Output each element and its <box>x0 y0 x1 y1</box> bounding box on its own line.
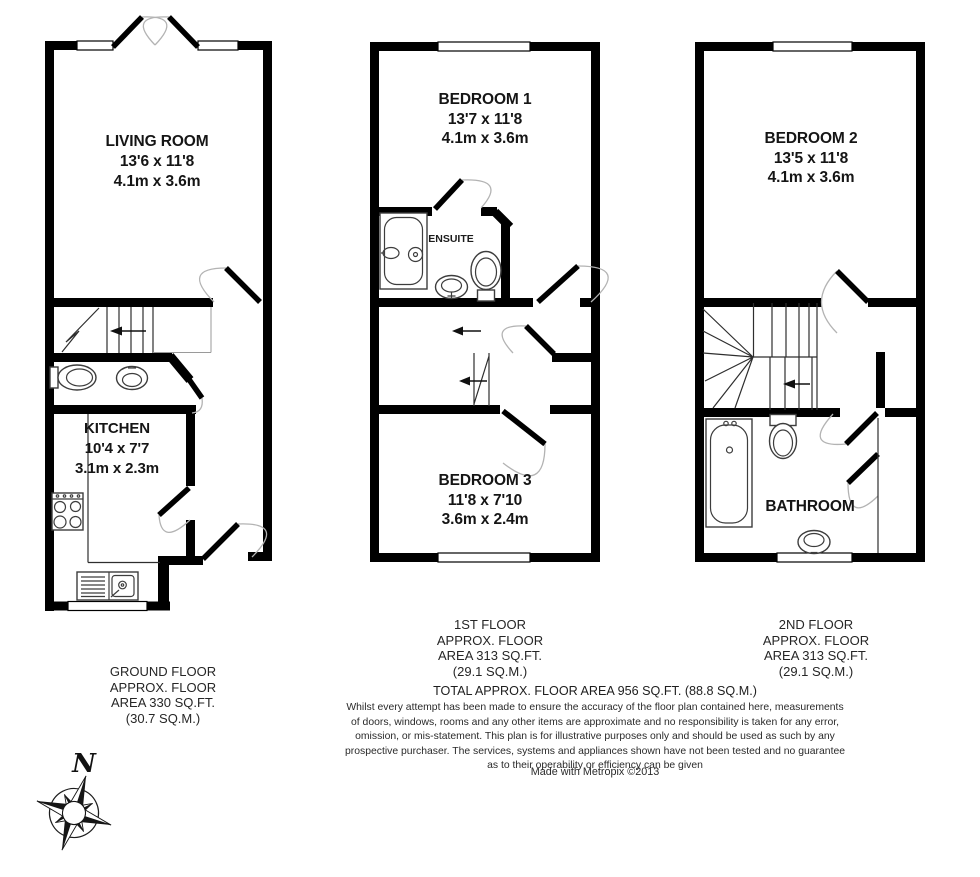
room-dims-imperial: 13'7 x 11'8 <box>385 110 585 130</box>
room-name: ENSUITE <box>423 233 479 245</box>
caption-line: (29.1 SQ.M.) <box>390 664 590 680</box>
caption-line: APPROX. FLOOR <box>716 633 916 649</box>
window <box>68 602 147 611</box>
room-name: BEDROOM 3 <box>385 471 585 491</box>
room-dims-imperial: 10'4 x 7'7 <box>32 439 202 459</box>
ground-floor-plan <box>45 17 272 611</box>
toilet-fixture <box>471 252 501 302</box>
window <box>198 41 238 50</box>
window <box>438 42 530 51</box>
room-name: LIVING ROOM <box>57 132 257 152</box>
caption-line: GROUND FLOOR <box>63 664 263 680</box>
basin-fixture <box>436 276 468 299</box>
disclaimer-line: of doors, windows, rooms and any other i… <box>195 716 980 731</box>
disclaimer-line: Whilst every attempt has been made to en… <box>195 701 980 716</box>
toilet-fixture <box>770 415 797 459</box>
french-doors <box>113 17 198 47</box>
compass-rose-icon: N <box>25 749 123 862</box>
living-room-label: LIVING ROOM 13'6 x 11'8 4.1m x 3.6m <box>57 132 257 192</box>
caption-line: 1ST FLOOR <box>390 617 590 633</box>
bathroom-label: BATHROOM <box>750 497 870 517</box>
bedroom3-label: BEDROOM 3 11'8 x 7'10 3.6m x 2.4m <box>385 471 585 530</box>
room-dims-metric: 3.6m x 2.4m <box>385 510 585 530</box>
bedroom1-label: BEDROOM 1 13'7 x 11'8 4.1m x 3.6m <box>385 90 585 149</box>
stairs-icon <box>703 303 817 410</box>
stairs-icon <box>452 327 489 407</box>
caption-line: 2ND FLOOR <box>716 617 916 633</box>
door <box>159 488 190 532</box>
credit-line: Made with Metropix ©2013 <box>195 766 980 778</box>
stairs-icon <box>62 307 211 353</box>
basin-fixture <box>798 531 830 554</box>
basin-fixture <box>117 367 148 390</box>
caption-line: APPROX. FLOOR <box>390 633 590 649</box>
compass-north-label: N <box>71 749 97 779</box>
door <box>503 411 545 476</box>
sink-fixture <box>77 572 138 600</box>
door <box>822 271 869 333</box>
room-dims-metric: 4.1m x 3.6m <box>385 129 585 149</box>
caption-line: (29.1 SQ.M.) <box>716 664 916 680</box>
room-name: BEDROOM 2 <box>711 129 911 149</box>
bath-fixture <box>706 419 752 527</box>
room-name: BEDROOM 1 <box>385 90 585 110</box>
disclaimer-line: prospective purchaser. The services, sys… <box>195 745 980 760</box>
disclaimer-line: omission, or mis-statement. This plan is… <box>195 730 980 745</box>
wall <box>170 356 190 380</box>
window <box>773 42 852 51</box>
door <box>502 326 554 354</box>
room-name: KITCHEN <box>32 419 202 439</box>
bedroom2-label: BEDROOM 2 13'5 x 11'8 4.1m x 3.6m <box>711 129 911 188</box>
window <box>77 41 113 50</box>
room-dims-metric: 4.1m x 3.6m <box>711 168 911 188</box>
room-name: BATHROOM <box>750 497 870 517</box>
window <box>438 553 530 562</box>
room-dims-imperial: 13'6 x 11'8 <box>57 152 257 172</box>
ensuite-label: ENSUITE <box>423 233 479 245</box>
room-dims-imperial: 13'5 x 11'8 <box>711 149 911 169</box>
second-floor-plan <box>695 42 925 562</box>
second-floor-caption: 2ND FLOOR APPROX. FLOOR AREA 313 SQ.FT. … <box>716 617 916 679</box>
shower-fixture <box>380 213 427 289</box>
room-dims-metric: 4.1m x 3.6m <box>57 172 257 192</box>
floorplan-page: N LIVING ROOM 13'6 x 11'8 4.1m x 3.6m KI… <box>0 0 980 877</box>
door <box>435 180 491 209</box>
door <box>200 268 260 302</box>
room-dims-metric: 3.1m x 2.3m <box>32 459 202 479</box>
window <box>777 553 852 562</box>
disclaimer-text: Whilst every attempt has been made to en… <box>195 701 980 774</box>
caption-line: AREA 313 SQ.FT. <box>390 648 590 664</box>
toilet-fixture <box>50 365 96 390</box>
first-floor-caption: 1ST FLOOR APPROX. FLOOR AREA 313 SQ.FT. … <box>390 617 590 679</box>
room-dims-imperial: 11'8 x 7'10 <box>385 491 585 511</box>
caption-line: AREA 313 SQ.FT. <box>716 648 916 664</box>
hob-fixture <box>52 493 83 530</box>
total-area-line: TOTAL APPROX. FLOOR AREA 956 SQ.FT. (88.… <box>195 684 980 698</box>
kitchen-label: KITCHEN 10'4 x 7'7 3.1m x 2.3m <box>32 419 202 479</box>
door <box>820 413 877 444</box>
